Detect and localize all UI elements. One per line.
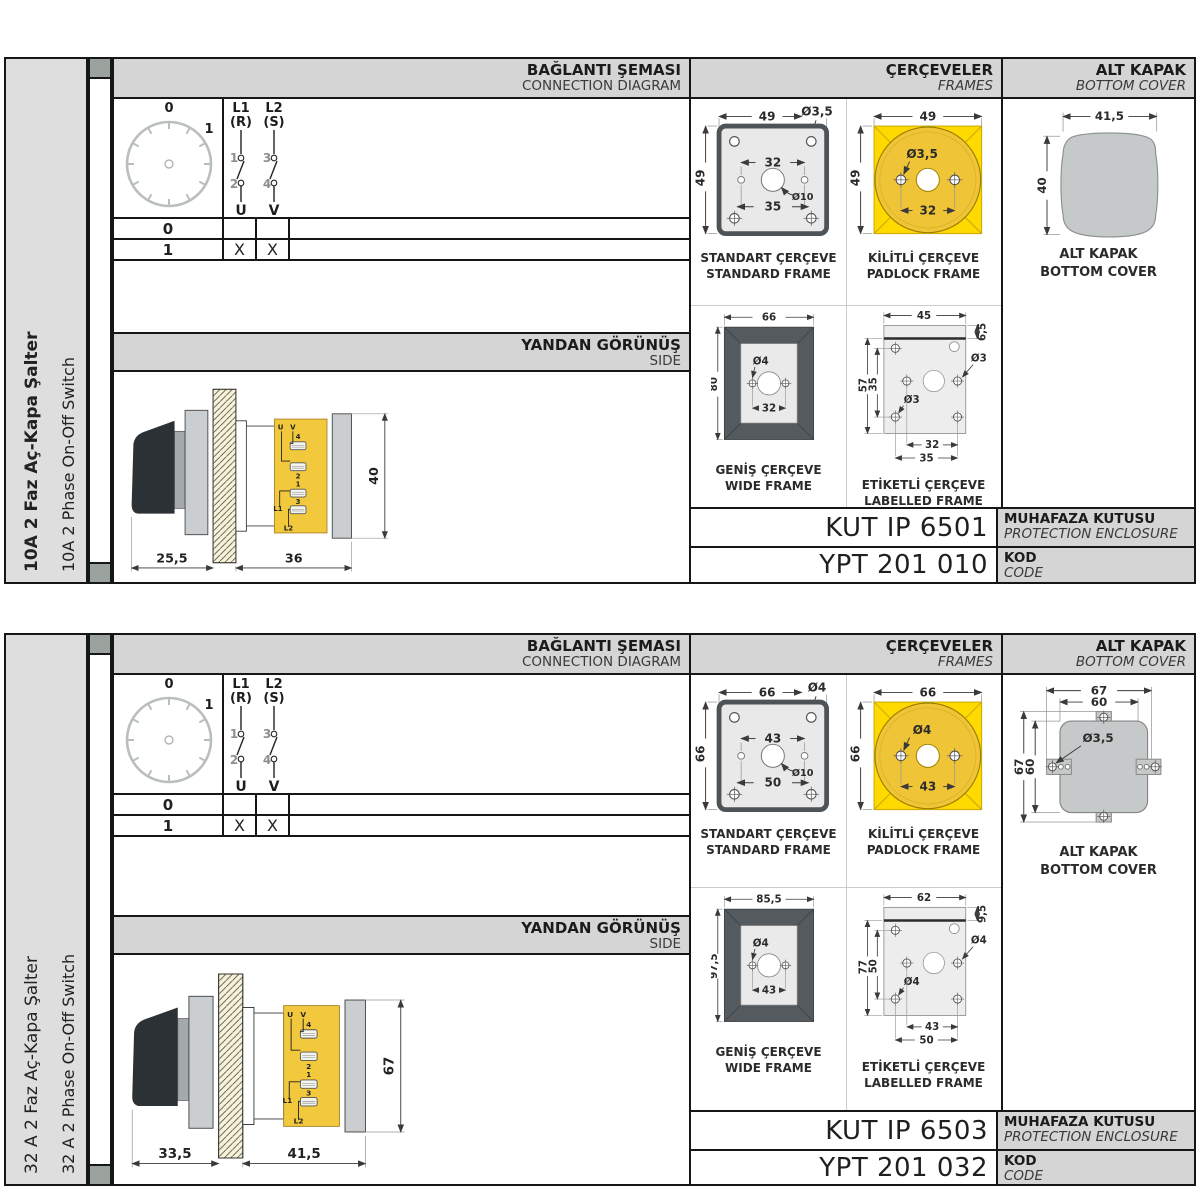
side-view-drawing: U V 4 2 1 3 L1 L2 25,5 36	[122, 377, 429, 575]
switch-symbols	[237, 706, 277, 778]
dim-body-depth: 36	[285, 551, 303, 566]
terminal-2: 2	[230, 753, 238, 767]
pole2-sub: (S)	[263, 691, 284, 706]
back-plate	[332, 414, 351, 538]
dial-pos-0: 0	[164, 101, 173, 116]
hole-dia-bottom: Ø4	[903, 976, 919, 988]
wide-frame-drawing: 85,5 97,5 Ø4	[711, 891, 827, 1043]
connection-region: BAĞLANTI ŞEMASI CONNECTION DIAGRAM	[114, 59, 691, 582]
product-panel: 32 A 2 Faz Aç-Kapa Şalter 32 A 2 Phase O…	[4, 633, 1196, 1186]
dim-width: 45	[916, 311, 930, 322]
terminal-4: 4	[263, 177, 271, 191]
bottom-cover-drawing-plain: 41,5 40	[1011, 107, 1187, 245]
wide-frame-label-en: WIDE FRAME	[725, 1061, 812, 1075]
index-square-bottom	[88, 562, 112, 584]
padlock-frame-label-tr: KİLİTLİ ÇERÇEVE	[868, 827, 979, 841]
dim-height: 49	[694, 170, 708, 187]
frames-header: ÇERÇEVELER FRAMES	[691, 59, 1003, 99]
svg-text:U: U	[287, 1010, 293, 1019]
dim-height: 40	[1035, 177, 1049, 193]
cover-label-tr: ALT KAPAK	[1059, 247, 1137, 263]
svg-text:L1: L1	[273, 505, 282, 513]
switch-body	[274, 419, 327, 533]
standard-frame-drawing: 66 Ø4 66	[694, 679, 844, 825]
cover-header: ALT KAPAK BOTTOM COVER	[1003, 59, 1194, 99]
switch-symbols	[237, 130, 277, 202]
pole1-sub: (R)	[230, 115, 252, 130]
dim-body-depth: 41,5	[288, 1146, 321, 1162]
output-u: U	[235, 779, 246, 793]
cover-label-tr: ALT KAPAK	[1059, 845, 1137, 861]
index-strip	[88, 633, 112, 1186]
enclosure-code: KUT IP 6501	[691, 509, 996, 546]
dim-height: 40	[366, 467, 381, 485]
padlock-frame-drawing: 49 49 Ø3,5	[849, 103, 999, 249]
dim-width: 41,5	[1094, 109, 1123, 123]
terminal-1: 1	[230, 727, 238, 741]
cover-label-en: BOTTOM COVER	[1040, 265, 1157, 281]
frames-header-tr: ÇERÇEVELER	[691, 637, 993, 655]
standard-frame-label-en: STANDARD FRAME	[706, 843, 831, 857]
center-hole-dia: Ø10	[791, 767, 813, 779]
tab-hole-dia: Ø3,5	[1082, 731, 1113, 745]
knob	[132, 1007, 178, 1105]
switch-table-row: 1 X X	[114, 814, 689, 837]
row-v-cell: X	[257, 816, 290, 835]
standard-frame-label-en: STANDARD FRAME	[706, 267, 831, 281]
dial-drawing: 0 1	[116, 101, 222, 215]
terminal-2: 2	[230, 177, 238, 191]
hole-dia: Ø4	[752, 937, 768, 949]
center-hole-dia: Ø10	[791, 191, 813, 203]
svg-text:2: 2	[296, 473, 301, 481]
row-u-cell	[224, 219, 257, 238]
corner-hole-dia: Ø3,5	[801, 104, 832, 118]
frames-header: ÇERÇEVELER FRAMES	[691, 635, 1003, 675]
labelled-frame-cell: 45 6,5 Ø3 Ø3	[846, 305, 1001, 509]
row-position-label: 0	[114, 219, 224, 238]
frames-header-tr: ÇERÇEVELER	[691, 61, 993, 79]
code-row: YPT 201 010 KOD CODE	[691, 546, 1194, 582]
bottom-cover-cell: 67 60 67 60	[1003, 675, 1194, 1110]
output-v: V	[269, 203, 280, 217]
shaft-hole	[923, 370, 944, 391]
product-code: YPT 201 032	[691, 1151, 996, 1184]
product-title-en: 10A 2 Phase On-Off Switch	[59, 357, 78, 572]
dim-height: 80	[711, 377, 720, 391]
frames-header-en: FRAMES	[691, 655, 993, 671]
connection-header: BAĞLANTI ŞEMASI CONNECTION DIAGRAM	[114, 59, 689, 99]
side-view-header: YANDAN GÖRÜNÜŞ SIDE	[114, 915, 689, 955]
shaft-hole	[761, 168, 784, 191]
cover-header-en: BOTTOM COVER	[1003, 79, 1186, 95]
connection-header-tr: BAĞLANTI ŞEMASI	[114, 637, 681, 655]
pole2-sub: (S)	[263, 115, 284, 130]
code-label-en: CODE	[1004, 1169, 1194, 1185]
product-code: YPT 201 010	[691, 548, 996, 582]
cover-header-tr: ALT KAPAK	[1003, 61, 1186, 79]
wide-frame-drawing: 66 80 Ø4	[711, 309, 827, 461]
output-v: V	[269, 779, 280, 793]
switch-table-row: 0	[114, 217, 689, 238]
standard-frame-cell: 49 Ø3,5 49	[691, 99, 846, 305]
side-view-drawing: U V 4 2 1 3 L1 L2 33,5 41,5	[122, 961, 447, 1171]
dim-height-inner: 60	[1023, 759, 1037, 776]
dim-strip: 9,5	[977, 905, 988, 923]
dim-height: 66	[694, 746, 708, 763]
side-header-tr: YANDAN GÖRÜNÜŞ	[114, 919, 681, 937]
product-title-en: 32 A 2 Phase On-Off Switch	[59, 954, 78, 1174]
dim-outer-span: 50	[919, 1035, 933, 1046]
dim-inner-height: 35	[868, 377, 879, 391]
dim-height: 97,5	[711, 953, 720, 978]
frames-grid: 66 Ø4 66	[691, 675, 1003, 1110]
dim-hole-span: 43	[764, 731, 781, 745]
enclosure-code: KUT IP 6503	[691, 1112, 996, 1149]
side-view-header: YANDAN GÖRÜNÜŞ SIDE	[114, 332, 689, 372]
hole-dia-right: Ø3	[970, 352, 986, 364]
cover-body	[1060, 133, 1157, 237]
index-square-top	[88, 57, 112, 79]
dim-hole-span: 43	[761, 984, 775, 996]
shaft-hole	[761, 744, 784, 767]
svg-text:L2: L2	[284, 524, 293, 532]
sidebar: 32 A 2 Faz Aç-Kapa Şalter 32 A 2 Phase O…	[4, 633, 88, 1186]
cover-header-tr: ALT KAPAK	[1003, 637, 1186, 655]
svg-text:L1: L1	[282, 1096, 292, 1105]
pole2-label: L2	[265, 677, 282, 692]
connection-region: BAĞLANTI ŞEMASI CONNECTION DIAGRAM	[114, 635, 691, 1184]
wide-frame-cell: 85,5 97,5 Ø4	[691, 887, 846, 1110]
front-plate	[189, 996, 213, 1128]
enclosure-label: MUHAFAZA KUTUSU PROTECTION ENCLOSURE	[996, 1112, 1194, 1149]
contact-diagram: L1 (R) L2 (S) 1 2 3 4 U V	[224, 99, 306, 217]
standard-frame-drawing: 49 Ø3,5 49	[694, 103, 844, 249]
product-panel: 10A 2 Faz Aç-Kapa Şalter 10A 2 Phase On-…	[4, 57, 1196, 584]
enclosure-label-tr: MUHAFAZA KUTUSU	[1004, 1114, 1194, 1130]
labelled-frame-label-tr: ETİKETLİ ÇERÇEVE	[862, 1060, 986, 1074]
index-square-top	[88, 633, 112, 655]
product-title-tr: 10A 2 Faz Aç-Kapa Şalter	[22, 332, 42, 572]
connection-header-en: CONNECTION DIAGRAM	[114, 79, 681, 95]
dim-hole-span: 32	[764, 155, 781, 169]
shaft-hole	[757, 954, 780, 977]
standard-frame-label-tr: STANDART ÇERÇEVE	[700, 251, 836, 265]
row-filler	[290, 240, 689, 259]
dim-width-inner: 60	[1090, 695, 1107, 709]
dim-width: 49	[758, 109, 775, 123]
dim-width: 85,5	[756, 894, 781, 906]
dim-width: 66	[919, 685, 936, 699]
svg-text:V: V	[300, 1010, 306, 1019]
enclosure-row: KUT IP 6501 MUHAFAZA KUTUSU PROTECTION E…	[691, 507, 1194, 546]
row-filler	[290, 816, 689, 835]
dim-mount-span: 35	[764, 200, 781, 214]
enclosure-row: KUT IP 6503 MUHAFAZA KUTUSU PROTECTION E…	[691, 1110, 1194, 1149]
shaft-hole	[916, 744, 939, 767]
svg-text:U: U	[278, 424, 284, 432]
knob	[132, 421, 175, 514]
side-header-en: SIDE	[114, 354, 681, 370]
switch-body	[284, 1006, 340, 1127]
padlock-frame-cell: 49 49 Ø3,5	[846, 99, 1001, 305]
labelled-frame-cell: 62 9,5 Ø4 Ø4	[846, 887, 1001, 1110]
padlock-frame-cell: 66 66 Ø4	[846, 675, 1001, 887]
padlock-frame-label-en: PADLOCK FRAME	[867, 267, 981, 281]
switch-table-row: 1 X X	[114, 238, 689, 261]
padlock-frame-label-en: PADLOCK FRAME	[867, 843, 981, 857]
svg-text:3: 3	[296, 498, 301, 506]
switch-table-row: 0	[114, 793, 689, 814]
dial-cell: 0 1	[114, 675, 224, 793]
side-header-tr: YANDAN GÖRÜNÜŞ	[114, 336, 681, 354]
spacer	[236, 421, 247, 531]
row-v-cell	[257, 219, 290, 238]
terminal-1: 1	[230, 151, 238, 165]
corner-hole-dia: Ø4	[807, 680, 826, 694]
datasheet-body: BAĞLANTI ŞEMASI CONNECTION DIAGRAM	[112, 57, 1196, 584]
index-strip	[88, 57, 112, 584]
frames-grid: 49 Ø3,5 49	[691, 99, 1003, 507]
pole1-label: L1	[232, 677, 249, 692]
pole1-label: L1	[232, 101, 249, 116]
dial-face	[127, 698, 211, 782]
standard-frame-label-tr: STANDART ÇERÇEVE	[700, 827, 836, 841]
svg-text:1: 1	[306, 1070, 311, 1079]
terminal-3: 3	[263, 151, 271, 165]
svg-text:1: 1	[296, 481, 301, 489]
code-label: KOD CODE	[996, 548, 1194, 582]
switch-front-block	[246, 426, 274, 526]
wide-frame-label-tr: GENİŞ ÇERÇEVE	[715, 1045, 821, 1059]
dim-mount-span: 50	[764, 776, 781, 790]
dial-pos-0: 0	[164, 677, 173, 692]
sidebar: 10A 2 Faz Aç-Kapa Şalter 10A 2 Phase On-…	[4, 57, 88, 584]
dim-hole-span: 43	[919, 779, 936, 793]
dim-inner-height: 50	[868, 959, 879, 973]
code-row: YPT 201 032 KOD CODE	[691, 1149, 1194, 1184]
connection-header-en: CONNECTION DIAGRAM	[114, 655, 681, 671]
labelled-frame-drawing: 62 9,5 Ø4 Ø4	[856, 891, 992, 1058]
row-u-cell: X	[224, 816, 257, 835]
row-position-label: 1	[114, 240, 224, 259]
hole-dia: Ø4	[752, 355, 768, 367]
svg-text:V: V	[290, 424, 296, 432]
dim-front-depth: 25,5	[156, 551, 187, 566]
enclosure-label-en: PROTECTION ENCLOSURE	[1004, 1130, 1194, 1146]
dim-inner-span: 43	[925, 1022, 939, 1033]
shaft-hole	[923, 952, 944, 973]
svg-text:4: 4	[306, 1020, 311, 1029]
hole-dia: Ø3,5	[906, 147, 937, 161]
hole-dia-bottom: Ø3	[903, 394, 919, 406]
dim-height: 67	[381, 1057, 397, 1076]
row-v-cell	[257, 795, 290, 814]
dim-width: 49	[919, 109, 936, 123]
standard-frame-cell: 66 Ø4 66	[691, 675, 846, 887]
cover-header-en: BOTTOM COVER	[1003, 655, 1186, 671]
dial-face	[127, 122, 211, 206]
row-filler	[290, 219, 689, 238]
svg-text:3: 3	[306, 1089, 311, 1098]
datasheet-body: BAĞLANTI ŞEMASI CONNECTION DIAGRAM	[112, 633, 1196, 1186]
row-u-cell: X	[224, 240, 257, 259]
terminal-4: 4	[263, 753, 271, 767]
index-square-bottom	[88, 1164, 112, 1186]
dial-drawing: 0 1	[116, 677, 222, 791]
shaft-hole	[757, 372, 780, 395]
spacer	[243, 1007, 254, 1124]
code-label-tr: KOD	[1004, 550, 1194, 566]
dim-height: 49	[849, 170, 863, 187]
pole2-label: L2	[265, 101, 282, 116]
terminal-3: 3	[263, 727, 271, 741]
hole-dia: Ø4	[912, 723, 931, 737]
dim-width: 62	[916, 893, 930, 904]
dim-front-depth: 33,5	[158, 1146, 191, 1162]
dial-cell: 0 1	[114, 99, 224, 217]
svg-text:L2: L2	[294, 1117, 304, 1126]
connection-header: BAĞLANTI ŞEMASI CONNECTION DIAGRAM	[114, 635, 689, 675]
enclosure-label-en: PROTECTION ENCLOSURE	[1004, 527, 1194, 543]
dial-pos-1: 1	[204, 698, 213, 713]
cover-header: ALT KAPAK BOTTOM COVER	[1003, 635, 1194, 675]
wide-frame-label-tr: GENİŞ ÇERÇEVE	[715, 463, 821, 477]
mounting-panel-hatch	[219, 974, 243, 1158]
shaft-hole	[916, 168, 939, 191]
knob-step	[178, 1019, 189, 1101]
bottom-cover-cell: 41,5 40	[1003, 99, 1194, 507]
mounting-panel-hatch	[213, 389, 236, 562]
row-v-cell: X	[257, 240, 290, 259]
code-label-tr: KOD	[1004, 1153, 1194, 1169]
knob-step	[175, 431, 186, 508]
cover-label-en: BOTTOM COVER	[1040, 863, 1157, 879]
pole1-sub: (R)	[230, 691, 252, 706]
back-plate	[345, 1000, 365, 1132]
dim-width: 66	[761, 312, 775, 324]
labelled-frame-drawing: 45 6,5 Ø3 Ø3	[856, 309, 992, 476]
code-label-en: CODE	[1004, 566, 1194, 582]
output-u: U	[235, 203, 246, 217]
frames-header-en: FRAMES	[691, 79, 993, 95]
connection-header-tr: BAĞLANTI ŞEMASI	[114, 61, 681, 79]
dim-hole-span: 32	[919, 203, 936, 217]
dim-strip: 6,5	[977, 323, 988, 341]
wide-frame-label-en: WIDE FRAME	[725, 479, 812, 493]
padlock-frame-label-tr: KİLİTLİ ÇERÇEVE	[868, 251, 979, 265]
hole-dia-right: Ø4	[970, 934, 986, 946]
dim-width: 66	[758, 685, 775, 699]
row-u-cell	[224, 795, 257, 814]
row-position-label: 0	[114, 795, 224, 814]
enclosure-label: MUHAFAZA KUTUSU PROTECTION ENCLOSURE	[996, 509, 1194, 546]
wide-frame-cell: 66 80 Ø4	[691, 305, 846, 509]
labelled-frame-label-en: LABELLED FRAME	[864, 1076, 983, 1090]
frames-region: ÇERÇEVELER FRAMES ALT KAPAK BOTTOM COVER…	[691, 635, 1194, 1184]
labelled-frame-label-tr: ETİKETLİ ÇERÇEVE	[862, 478, 986, 492]
dim-height: 66	[849, 746, 863, 763]
contact-diagram: L1 (R) L2 (S) 1 2 3 4 U V	[224, 675, 306, 793]
enclosure-label-tr: MUHAFAZA KUTUSU	[1004, 511, 1194, 527]
dim-hole-span: 32	[761, 402, 775, 414]
svg-text:4: 4	[296, 433, 301, 441]
front-plate	[185, 410, 208, 534]
row-position-label: 1	[114, 816, 224, 835]
code-label: KOD CODE	[996, 1151, 1194, 1184]
bottom-cover-drawing-tabbed: 67 60 67 60	[1008, 683, 1190, 843]
row-filler	[290, 795, 689, 814]
frames-region: ÇERÇEVELER FRAMES ALT KAPAK BOTTOM COVER…	[691, 59, 1194, 582]
switch-front-block	[254, 1013, 284, 1119]
dim-outer-span: 35	[919, 453, 933, 464]
dim-inner-span: 32	[925, 440, 939, 451]
product-title-tr: 32 A 2 Faz Aç-Kapa Şalter	[22, 956, 42, 1174]
side-header-en: SIDE	[114, 937, 681, 953]
dial-pos-1: 1	[204, 122, 213, 137]
padlock-frame-drawing: 66 66 Ø4	[849, 679, 999, 825]
